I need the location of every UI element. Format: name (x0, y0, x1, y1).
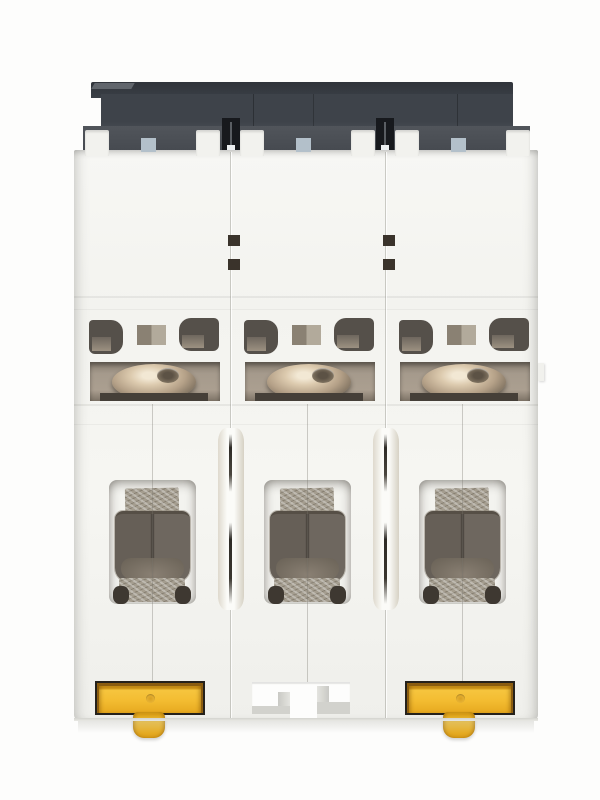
vent-opening-right (179, 318, 219, 351)
terminal-screw-window (90, 362, 220, 401)
notch-wall (252, 706, 290, 714)
seam-rivet (383, 259, 395, 270)
busbar-slot-mark (451, 138, 466, 152)
vent-interior (92, 337, 111, 351)
screw-dimple (467, 368, 489, 383)
drop-shadow (78, 721, 534, 733)
housing-top-tab (196, 130, 220, 156)
clip-dimple (456, 694, 465, 703)
seam-rivet (228, 259, 240, 270)
screw-seat (410, 393, 518, 401)
vent-interior (247, 337, 266, 351)
vent-opening-center (292, 325, 321, 345)
inter-pole-groove (218, 428, 244, 610)
product-photo-circuit-breaker (0, 0, 600, 800)
mold-seam (462, 404, 463, 682)
busbar-slot-mark (141, 138, 156, 152)
cap-edge-highlight (91, 83, 134, 89)
din-clip-recess (95, 681, 205, 715)
mold-seam (152, 404, 153, 682)
din-clip-slider (409, 686, 511, 713)
vent-opening-center (447, 325, 476, 345)
clamp-foot (268, 586, 284, 604)
vent-interior (402, 337, 421, 351)
din-clip-recess (405, 681, 515, 715)
screw-seat (255, 393, 363, 401)
inter-pole-groove (373, 428, 399, 610)
busbar-slot-mark (296, 138, 311, 152)
groove-seam-line (229, 434, 232, 604)
notch-wall (317, 702, 350, 714)
pole-2 (230, 128, 385, 740)
clamp-foot (423, 586, 439, 604)
clamp-foot (175, 586, 191, 604)
din-clip-slider (99, 686, 201, 713)
vent-opening-left (399, 320, 433, 354)
vent-opening-right (489, 318, 529, 351)
housing-top-tab (240, 130, 264, 156)
vent-interior (337, 335, 359, 348)
clip-dimple (146, 694, 155, 703)
seam-rivet (383, 235, 395, 246)
clamp-foot (330, 586, 346, 604)
vent-opening-right (334, 318, 374, 351)
terminal-screw-window (400, 362, 530, 401)
screw-seat (100, 393, 208, 401)
clamp-foot (113, 586, 129, 604)
housing-top-tab (395, 130, 419, 156)
housing-top-tab (351, 130, 375, 156)
vent-interior (492, 335, 514, 348)
vent-opening-left (244, 320, 278, 354)
pole-1 (75, 128, 230, 740)
housing-top-tab (506, 130, 530, 156)
housing-top-tab (85, 130, 109, 156)
mold-seam (307, 404, 308, 682)
vent-opening-center (137, 325, 166, 345)
groove-seam-line (384, 434, 387, 604)
screw-dimple (312, 368, 334, 383)
clamp-foot (485, 586, 501, 604)
seam-rivet (228, 235, 240, 246)
pole-3 (385, 128, 540, 740)
screw-dimple (157, 368, 179, 383)
terminal-screw-window (245, 362, 375, 401)
vent-interior (182, 335, 204, 348)
vent-opening-left (89, 320, 123, 354)
